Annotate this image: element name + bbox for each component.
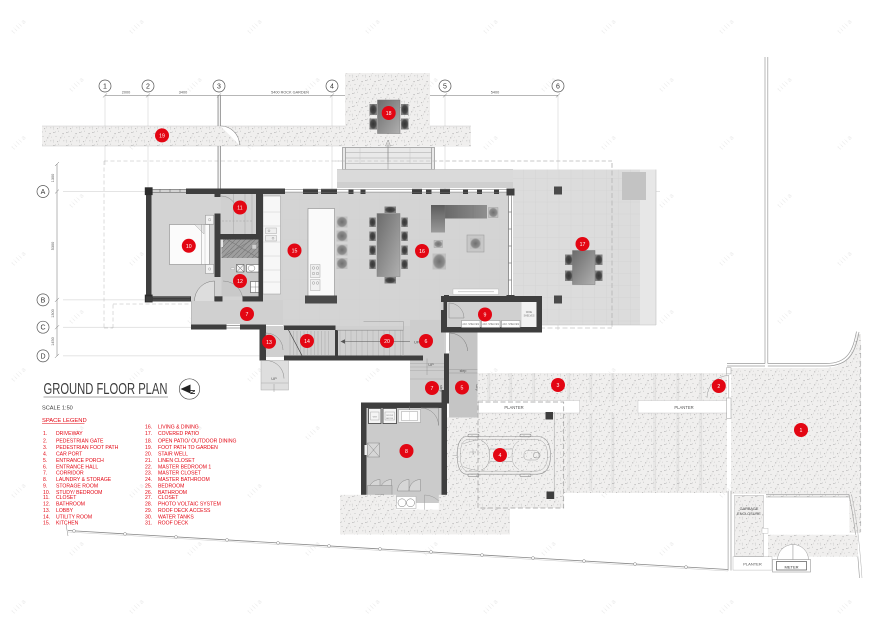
- svg-text:17: 17: [580, 242, 586, 248]
- svg-text:ENTRANCE HALL: ENTRANCE HALL: [56, 464, 98, 470]
- svg-text:C: C: [40, 325, 45, 332]
- svg-text:UP: UP: [428, 362, 434, 367]
- svg-text:3.: 3.: [43, 445, 47, 451]
- svg-text:12: 12: [237, 279, 243, 285]
- svg-text:27.: 27.: [145, 495, 152, 501]
- svg-text:UP: UP: [414, 340, 420, 345]
- svg-text:11.: 11.: [43, 495, 50, 501]
- svg-text:PLANTER: PLANTER: [743, 562, 762, 567]
- svg-text:9.: 9.: [43, 484, 47, 490]
- svg-text:ABOVE: ABOVE: [386, 417, 394, 420]
- svg-text:20: 20: [384, 339, 390, 345]
- svg-text:STAIR WELL: STAIR WELL: [158, 452, 188, 458]
- svg-text:BATHROOM: BATHROOM: [56, 501, 85, 507]
- svg-text:24.: 24.: [145, 477, 152, 483]
- svg-text:17.: 17.: [145, 431, 152, 437]
- svg-text:13: 13: [266, 340, 272, 346]
- svg-text:31.: 31.: [145, 521, 152, 527]
- svg-text:5.: 5.: [43, 458, 47, 464]
- svg-text:KITCHEN: KITCHEN: [56, 521, 79, 527]
- svg-text:21.: 21.: [145, 458, 152, 464]
- svg-text:2: 2: [146, 84, 150, 91]
- svg-text:9: 9: [484, 313, 487, 319]
- svg-text:25.: 25.: [145, 484, 152, 490]
- svg-text:PEDESTRIAN GATE: PEDESTRIAN GATE: [56, 439, 104, 445]
- svg-text:16.: 16.: [145, 424, 152, 430]
- svg-text:14: 14: [304, 339, 310, 345]
- svg-text:19.: 19.: [145, 445, 152, 451]
- svg-text:BEDROOM: BEDROOM: [158, 484, 184, 490]
- svg-text:15.: 15.: [43, 521, 50, 527]
- svg-text:W/M: W/M: [373, 416, 377, 418]
- svg-text:1300: 1300: [51, 309, 55, 317]
- svg-text:4.: 4.: [43, 452, 47, 458]
- svg-text:STORAGE ROOM: STORAGE ROOM: [56, 484, 98, 490]
- svg-text:PHOTO VOLTAIC SYSTEM: PHOTO VOLTAIC SYSTEM: [158, 501, 221, 507]
- svg-text:2: 2: [717, 384, 720, 390]
- svg-text:PLANTER: PLANTER: [504, 405, 523, 410]
- svg-text:5400 ROCK GARDEN: 5400 ROCK GARDEN: [271, 91, 309, 95]
- svg-text:14.: 14.: [43, 514, 50, 520]
- svg-text:ADJ. SHELVES: ADJ. SHELVES: [502, 323, 519, 326]
- svg-text:UP: UP: [271, 376, 277, 381]
- svg-text:1300: 1300: [51, 174, 55, 182]
- svg-text:ROOF DECK: ROOF DECK: [158, 521, 189, 527]
- svg-text:1: 1: [103, 84, 107, 91]
- svg-text:3: 3: [557, 383, 560, 389]
- svg-text:5400: 5400: [491, 91, 499, 95]
- svg-text:28.: 28.: [145, 501, 152, 507]
- svg-text:7.: 7.: [43, 471, 47, 477]
- svg-text:6: 6: [556, 84, 560, 91]
- svg-text:MASTER CLOSET: MASTER CLOSET: [158, 471, 201, 477]
- svg-text:13.: 13.: [43, 508, 50, 514]
- svg-text:GROUND FLOOR PLAN: GROUND FLOOR PLAN: [44, 381, 168, 398]
- svg-text:12.: 12.: [43, 501, 50, 507]
- svg-text:MASTER BATHROOM: MASTER BATHROOM: [158, 477, 210, 483]
- svg-text:3400: 3400: [179, 91, 187, 95]
- svg-text:5: 5: [443, 84, 447, 91]
- svg-text:2.: 2.: [43, 439, 47, 445]
- svg-text:5: 5: [461, 386, 464, 392]
- svg-text:10: 10: [186, 244, 192, 250]
- svg-text:18.: 18.: [145, 439, 152, 445]
- svg-text:OPEN PATIO/ OUTDOOR DINING: OPEN PATIO/ OUTDOOR DINING: [158, 439, 237, 445]
- svg-text:ROOF DECK ACCESS: ROOF DECK ACCESS: [158, 508, 211, 514]
- svg-text:1.: 1.: [43, 431, 47, 437]
- svg-text:LAUNDRY & STORAGE: LAUNDRY & STORAGE: [56, 477, 112, 483]
- svg-text:A: A: [41, 189, 46, 196]
- svg-text:METER: METER: [785, 564, 799, 569]
- svg-text:ADJ. SHELVES: ADJ. SHELVES: [462, 323, 479, 326]
- svg-text:5300: 5300: [51, 242, 55, 250]
- svg-text:MASTER BEDROOM 1: MASTER BEDROOM 1: [158, 464, 211, 470]
- svg-text:step: step: [460, 369, 467, 373]
- svg-text:8.: 8.: [43, 477, 47, 483]
- svg-text:16: 16: [419, 249, 425, 255]
- svg-text:6.: 6.: [43, 464, 47, 470]
- svg-text:4: 4: [330, 84, 334, 91]
- svg-text:D: D: [40, 353, 45, 360]
- svg-text:29.: 29.: [145, 508, 152, 514]
- svg-text:SCALE 1:50: SCALE 1:50: [42, 406, 73, 412]
- svg-text:11: 11: [237, 206, 242, 212]
- svg-text:CLOSET: CLOSET: [158, 495, 178, 501]
- svg-text:GARBAGE: GARBAGE: [740, 507, 759, 511]
- svg-text:COVERED PATIO: COVERED PATIO: [158, 431, 199, 437]
- svg-text:SPACE LEGEND: SPACE LEGEND: [42, 418, 87, 424]
- svg-text:2000: 2000: [122, 91, 130, 95]
- svg-text:B: B: [41, 297, 46, 304]
- svg-text:LINEN CLOSET: LINEN CLOSET: [158, 458, 195, 464]
- svg-text:8: 8: [405, 449, 408, 455]
- svg-text:3: 3: [217, 84, 221, 91]
- svg-text:7: 7: [246, 312, 249, 318]
- svg-text:CLOSET: CLOSET: [56, 495, 76, 501]
- svg-text:LOBBY: LOBBY: [56, 508, 74, 514]
- svg-text:CORRIDOR: CORRIDOR: [56, 471, 84, 477]
- svg-text:18: 18: [386, 111, 392, 117]
- svg-text:7: 7: [431, 386, 434, 392]
- svg-text:1450: 1450: [51, 337, 55, 345]
- svg-text:SHELVES: SHELVES: [524, 315, 535, 318]
- svg-text:LIVING & DINING: LIVING & DINING: [158, 424, 199, 430]
- svg-text:20.: 20.: [145, 452, 152, 458]
- svg-text:ENCLOSURE: ENCLOSURE: [737, 512, 761, 516]
- svg-text:15: 15: [292, 249, 298, 255]
- svg-text:FOOT PATH TO GARDEN: FOOT PATH TO GARDEN: [158, 445, 218, 451]
- svg-text:CAR PORT: CAR PORT: [56, 452, 82, 458]
- svg-text:23.: 23.: [145, 471, 152, 477]
- svg-text:step: step: [439, 385, 443, 392]
- svg-text:WATER TANKS: WATER TANKS: [158, 514, 194, 520]
- svg-text:N: N: [190, 389, 197, 394]
- svg-text:4: 4: [499, 453, 502, 459]
- svg-text:19: 19: [159, 133, 165, 139]
- svg-text:30.: 30.: [145, 514, 152, 520]
- svg-text:22.: 22.: [145, 464, 152, 470]
- svg-text:DRYER: DRYER: [386, 415, 394, 417]
- svg-text:ENTRANCE PORCH: ENTRANCE PORCH: [56, 458, 104, 464]
- svg-text:6: 6: [425, 339, 428, 345]
- svg-text:DRIVEWAY: DRIVEWAY: [56, 431, 83, 437]
- svg-text:PEDESTRIAN FOOT PATH: PEDESTRIAN FOOT PATH: [56, 445, 119, 451]
- svg-text:ADJ. SHELVES: ADJ. SHELVES: [482, 323, 499, 326]
- svg-text:UTILITY ROOM: UTILITY ROOM: [56, 514, 92, 520]
- svg-text:PLANTER: PLANTER: [674, 405, 693, 410]
- svg-text:1: 1: [800, 428, 803, 434]
